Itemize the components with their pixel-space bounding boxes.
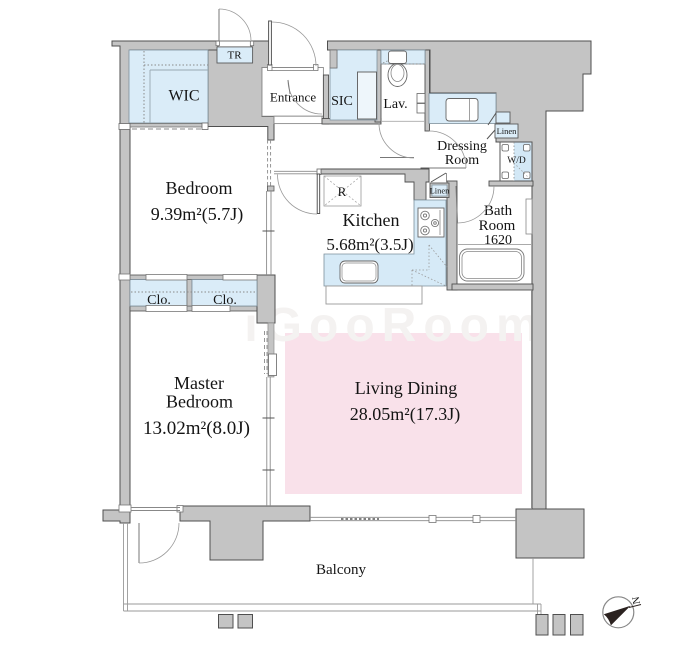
svg-text:Master: Master [174, 373, 224, 393]
svg-text:5.68m²(3.5J): 5.68m²(3.5J) [326, 235, 413, 254]
svg-text:Linen: Linen [497, 126, 518, 136]
svg-text:Room: Room [479, 218, 516, 234]
svg-text:Living Dining: Living Dining [355, 378, 458, 398]
svg-text:1620: 1620 [484, 233, 512, 248]
svg-text:28.05m²(17.3J): 28.05m²(17.3J) [350, 404, 460, 425]
svg-text:SIC: SIC [331, 94, 353, 109]
svg-text:W/D: W/D [507, 156, 526, 166]
svg-text:Room: Room [445, 153, 479, 168]
svg-text:13.02m²(8.0J): 13.02m²(8.0J) [143, 418, 250, 439]
svg-text:TR: TR [227, 50, 242, 62]
svg-text:iGooRoom: iGooRoom [244, 299, 545, 352]
svg-text:Linen: Linen [430, 186, 451, 196]
svg-text:Balcony: Balcony [316, 562, 366, 578]
svg-text:Bedroom: Bedroom [166, 392, 233, 412]
svg-text:WIC: WIC [168, 88, 199, 105]
svg-text:Lav.: Lav. [383, 97, 407, 112]
svg-text:Entrance: Entrance [270, 90, 316, 105]
svg-text:R: R [338, 184, 347, 199]
svg-text:Kitchen: Kitchen [343, 210, 400, 230]
svg-text:9.39m²(5.7J): 9.39m²(5.7J) [151, 204, 243, 225]
svg-text:Bedroom: Bedroom [166, 178, 233, 198]
